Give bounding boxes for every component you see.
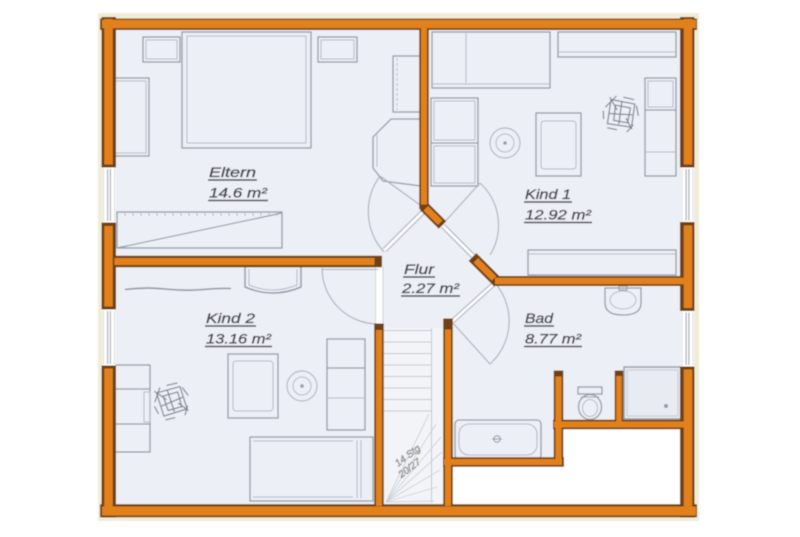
svg-text:Kind 2: Kind 2 [206,311,255,326]
svg-text:Flur: Flur [404,262,436,277]
svg-text:14.6 m²: 14.6 m² [209,186,267,201]
svg-text:Eltern: Eltern [209,165,256,180]
svg-text:Bad: Bad [525,311,554,326]
svg-text:Kind 1: Kind 1 [525,187,571,202]
svg-text:12.92 m²: 12.92 m² [525,208,591,223]
svg-text:2.27 m²: 2.27 m² [401,281,460,296]
svg-text:8.77 m²: 8.77 m² [525,332,581,347]
svg-text:13.16 m²: 13.16 m² [206,332,271,347]
